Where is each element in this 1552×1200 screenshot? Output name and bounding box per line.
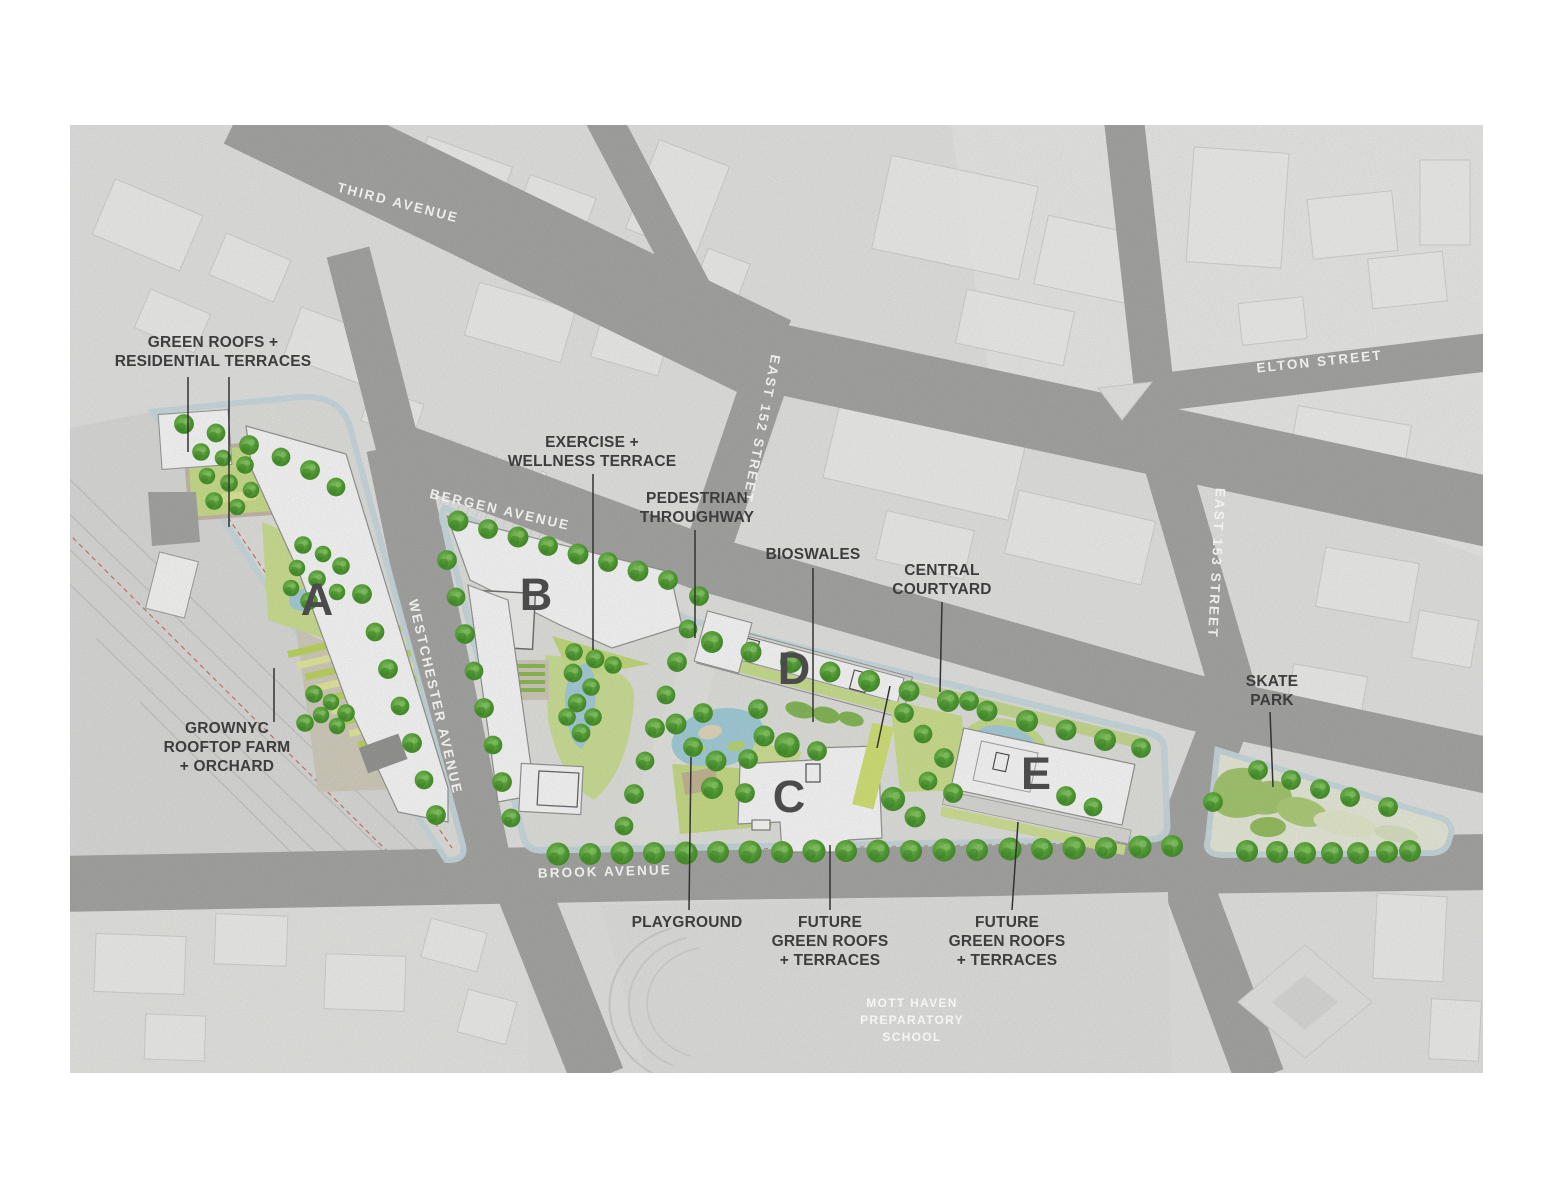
annotation-exercise-line2: WELLNESS TERRACE bbox=[508, 453, 677, 470]
site-plan-page: THIRD AVENUE BERGEN AVENUE WESTCHESTER A… bbox=[0, 0, 1552, 1200]
annotation-playground: PLAYGROUND bbox=[632, 914, 743, 931]
building-label-c: C bbox=[773, 771, 806, 822]
annotation-pedestrian-line1: PEDESTRIAN bbox=[646, 490, 748, 507]
annotation-exercise-line1: EXERCISE + bbox=[545, 434, 639, 451]
school-label-line2: PREPARATORY bbox=[860, 1013, 964, 1027]
annotation-skate-park-line2: PARK bbox=[1250, 692, 1294, 709]
annotation-grownyc-line2: ROOFTOP FARM bbox=[164, 739, 291, 756]
annotation-green-roofs-line1: GREEN ROOFS + bbox=[148, 334, 279, 351]
school-label-line1: MOTT HAVEN bbox=[866, 996, 957, 1010]
building-label-e: E bbox=[1021, 748, 1051, 799]
annotation-pedestrian-line2: THROUGHWAY bbox=[640, 509, 755, 526]
annotation-future-east-line3: + TERRACES bbox=[957, 952, 1058, 969]
annotation-future-east-line2: GREEN ROOFS bbox=[949, 933, 1066, 950]
site-plan-map: THIRD AVENUE BERGEN AVENUE WESTCHESTER A… bbox=[0, 0, 1552, 1200]
annotation-future-west-line3: + TERRACES bbox=[780, 952, 881, 969]
annotation-central-courtyard-line2: COURTYARD bbox=[892, 581, 991, 598]
annotation-future-west-line2: GREEN ROOFS bbox=[772, 933, 889, 950]
annotation-skate-park-line1: SKATE bbox=[1246, 673, 1298, 690]
annotation-future-west-line1: FUTURE bbox=[798, 914, 862, 931]
school-label-line3: SCHOOL bbox=[882, 1030, 941, 1044]
annotation-future-east-line1: FUTURE bbox=[975, 914, 1039, 931]
building-label-b: B bbox=[520, 569, 553, 620]
annotation-green-roofs-line2: RESIDENTIAL TERRACES bbox=[115, 353, 312, 370]
annotation-central-courtyard-line1: CENTRAL bbox=[904, 562, 979, 579]
building-label-a: A bbox=[301, 574, 334, 625]
annotation-bioswales: BIOSWALES bbox=[766, 546, 861, 563]
annotation-grownyc-line1: GROWNYC bbox=[185, 720, 269, 737]
building-label-d: D bbox=[778, 643, 811, 694]
aerial-grain bbox=[70, 125, 1483, 1073]
annotation-grownyc-line3: + ORCHARD bbox=[180, 758, 274, 775]
